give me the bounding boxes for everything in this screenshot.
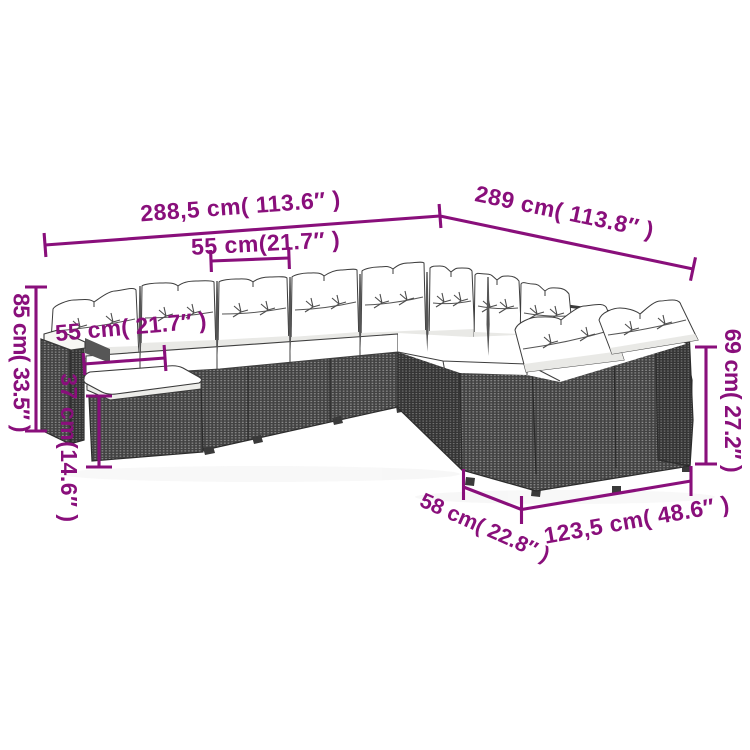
svg-text:69 cm( 27.2″ ): 69 cm( 27.2″ ) xyxy=(720,329,746,473)
svg-text:37 cm(14.6″ ): 37 cm(14.6″ ) xyxy=(56,373,82,522)
svg-text:85 cm( 33.5″ ): 85 cm( 33.5″ ) xyxy=(9,293,35,432)
